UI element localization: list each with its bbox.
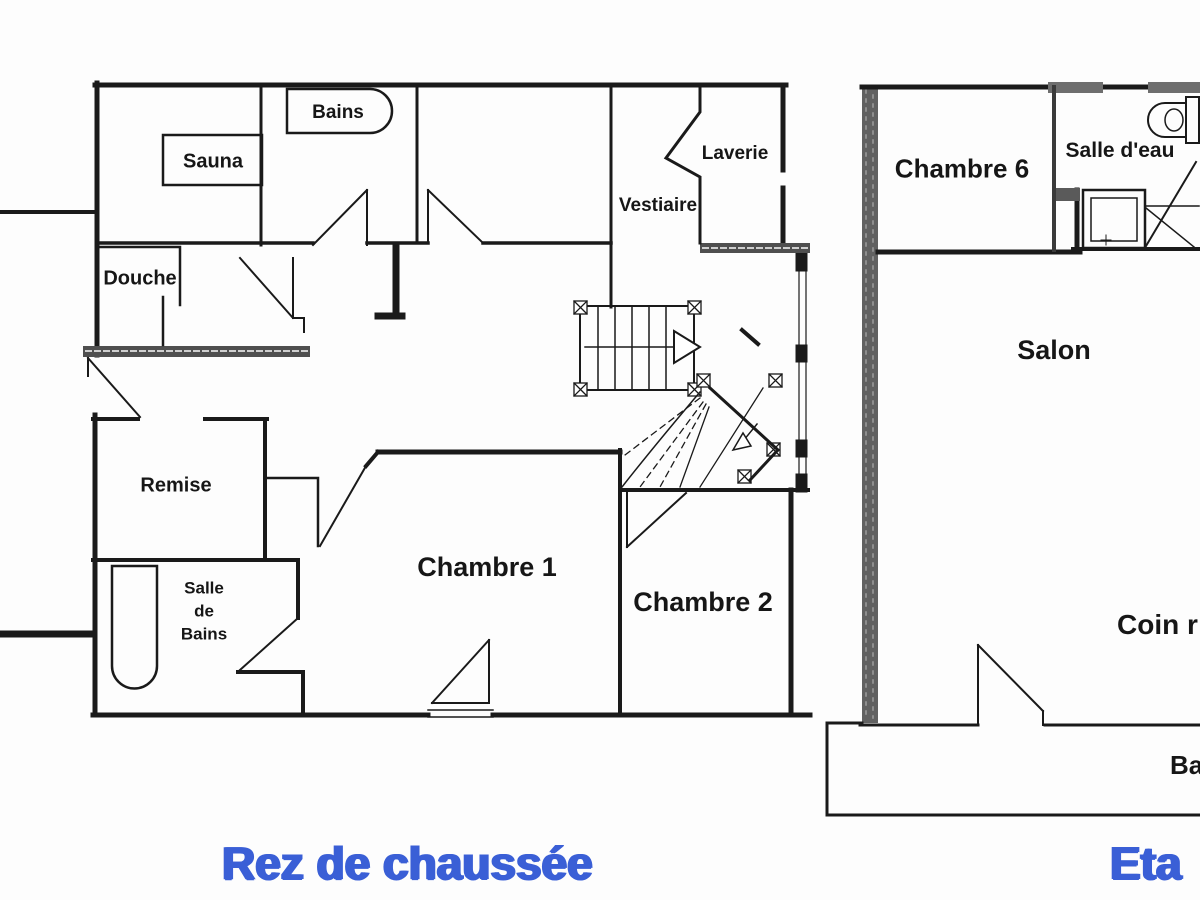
door-wc: [428, 190, 483, 243]
room-label-remise: Remise: [140, 476, 211, 497]
floor-title-rez-de-chaussee: Rez de chaussée: [222, 836, 593, 890]
door-salon: [978, 645, 1043, 725]
door-salle-eau: [1146, 162, 1199, 247]
room-label-vestiaire: Vestiaire: [619, 196, 697, 216]
balcony-outline: [827, 723, 1200, 815]
room-label-chambre2: Chambre 2: [633, 588, 773, 616]
door-salle-de-bains: [240, 618, 298, 670]
door-douche: [240, 258, 293, 318]
shower-icon: [1083, 190, 1145, 248]
room-label-salle-de-bains: Salle de Bains: [181, 578, 227, 647]
door-swings-left-plan: [88, 190, 686, 703]
hatched-walls: [83, 243, 810, 357]
door-chambre2: [627, 493, 686, 547]
floor-title-etage: Eta: [1110, 836, 1182, 890]
room-label-salle-eau: Salle d'eau: [1066, 140, 1175, 162]
salle-de-bains-line3: Bains: [181, 623, 227, 646]
door-chambre1: [432, 640, 489, 703]
room-label-coin: Coin r: [1117, 610, 1198, 639]
room-label-bains: Bains: [312, 103, 364, 123]
salle-de-bains-line2: de: [181, 601, 227, 624]
toilet-icon: [1148, 97, 1199, 143]
stairs-icon: [574, 301, 701, 396]
room-label-chambre1: Chambre 1: [417, 553, 557, 581]
room-label-laverie: Laverie: [702, 144, 769, 164]
door-bains: [313, 190, 367, 245]
floor-plan-page: Bains Sauna Douche Laverie Vestiaire Rem…: [0, 0, 1200, 900]
salle-de-bains-line1: Salle: [181, 578, 227, 601]
room-label-chambre6: Chambre 6: [895, 155, 1029, 182]
outer-walls-left-plan: [0, 83, 810, 717]
door-hall: [320, 466, 366, 546]
party-wall: [862, 85, 878, 723]
room-label-sauna: Sauna: [183, 152, 243, 173]
bathtub-icon: [112, 566, 157, 689]
room-label-balcon: Ba: [1170, 752, 1200, 779]
room-label-salon: Salon: [1017, 336, 1091, 364]
room-label-douche: Douche: [103, 269, 176, 290]
floor-plan-drawing: [0, 0, 1200, 900]
floor-plan-left: [0, 83, 810, 717]
winder-stairs-icon: [622, 330, 782, 487]
floor-plan-right: [827, 82, 1200, 815]
window-strip: [796, 253, 807, 492]
door-entry: [88, 358, 140, 417]
